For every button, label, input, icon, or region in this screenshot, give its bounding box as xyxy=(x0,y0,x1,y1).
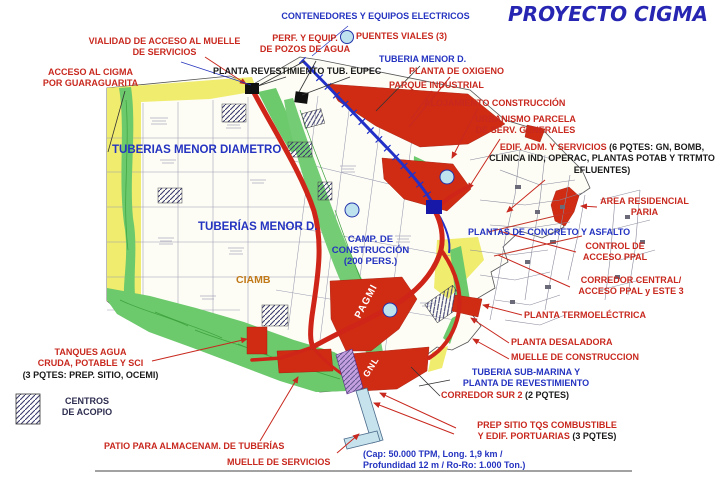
label-perf-pozos: PERF. Y EQUIP. DE POZOS DE AGUA xyxy=(252,33,358,56)
label-urbanismo: URBANISMO PARCELA DE SERV. GENERALES xyxy=(448,114,603,137)
label-edif-adm-main: EDIF. ADM. Y SERVICIOS xyxy=(500,142,609,152)
map-text-tuberias-menor-d: TUBERÍAS MENOR D. xyxy=(198,221,317,233)
label-tuberia-submarina: TUBERIA SUB-MARINA Y PLANTA DE REVESTIMI… xyxy=(446,367,606,390)
centros-acopio-legend-icon xyxy=(16,394,40,424)
label-parque-industrial: PARQUE INDUSTRIAL xyxy=(389,80,484,91)
label-planta-desaladora: PLANTA DESALADORA xyxy=(511,337,613,348)
label-corredor-sur: CORREDOR SUR 2 (2 PQTES) xyxy=(441,390,569,401)
label-cap-note: (Cap: 50.000 TPM, Long. 1,9 km / Profund… xyxy=(363,449,603,472)
label-muelle-construccion: MUELLE DE CONSTRUCCION xyxy=(511,352,639,363)
map-text-ciamb: CIAMB xyxy=(236,274,270,286)
label-plantas-concreto: PLANTAS DE CONCRETO Y ASFALTO xyxy=(468,227,630,238)
label-corredor-sur-detail: (2 PQTES) xyxy=(525,390,569,400)
label-planta-oxigeno: PLANTA DE OXIGENO xyxy=(409,66,504,77)
label-corredor-central: CORREDOR CENTRAL/ ACCESO PPAL y ESTE 3 xyxy=(556,275,706,298)
label-area-residencial: AREA RESIDENCIAL PARIA xyxy=(582,196,707,219)
access-marker-west xyxy=(245,83,259,94)
label-vialidad: VIALIDAD DE ACCESO AL MUELLE DE SERVICIO… xyxy=(82,36,247,59)
label-tanques-main: TANQUES AGUA CRUDA, POTABLE Y SCI xyxy=(38,347,144,368)
label-contenedores: CONTENEDORES Y EQUIPOS ELECTRICOS xyxy=(258,11,493,22)
label-tanques: TANQUES AGUA CRUDA, POTABLE Y SCI (3 PQT… xyxy=(8,347,173,381)
label-tuberia-menor-top: TUBERIA MENOR D. xyxy=(379,54,466,65)
label-planta-revestimiento: PLANTA REVESTIMIENTO TUB. EUPEC xyxy=(213,66,381,77)
label-planta-termoelectrica: PLANTA TERMOELÉCTRICA xyxy=(524,310,646,321)
label-prep-sitio-detail: (3 PQTES) xyxy=(572,431,616,441)
label-alojamiento: ALOJAMIENTO CONSTRUCCIÓN xyxy=(424,98,565,109)
map-text-tuberias-menor-diametro: TUBERIAS MENOR DIAMETRO xyxy=(112,144,281,156)
label-edif-adm: EDIF. ADM. Y SERVICIOS (6 PQTES: GN, BOM… xyxy=(487,142,717,176)
label-prep-sitio: PREP SITIO TQS COMBUSTIBLE Y EDIF. PORTU… xyxy=(452,420,642,443)
label-puentes-viales: PUENTES VIALES (3) xyxy=(356,31,447,42)
label-corredor-sur-main: CORREDOR SUR 2 xyxy=(441,390,525,400)
cigma-map-page: PROYECTO CIGMA CONTENEDORES Y EQUIPOS EL… xyxy=(0,0,720,478)
label-acceso-cigma: ACCESO AL CIGMA POR GUARAGUARITA xyxy=(28,67,153,90)
label-patio-tuberias: PATIO PARA ALMACENAM. DE TUBERÍAS xyxy=(104,441,284,452)
page-title: PROYECTO CIGMA xyxy=(500,2,716,26)
map-text-camp-construccion: CAMP. DE CONSTRUCCIÓN (200 PERS.) xyxy=(318,234,423,267)
label-control-acceso: CONTROL DE ACCESO PPAL xyxy=(560,241,670,264)
label-muelle-servicios: MUELLE DE SERVICIOS xyxy=(227,457,330,468)
service-pier-foot xyxy=(344,431,380,449)
label-centros-acopio: CENTROS DE ACOPIO xyxy=(48,396,126,419)
label-tanques-detail: (3 PQTES: PREP. SITIO, OCEMI) xyxy=(23,370,159,380)
junction-node xyxy=(426,200,442,214)
